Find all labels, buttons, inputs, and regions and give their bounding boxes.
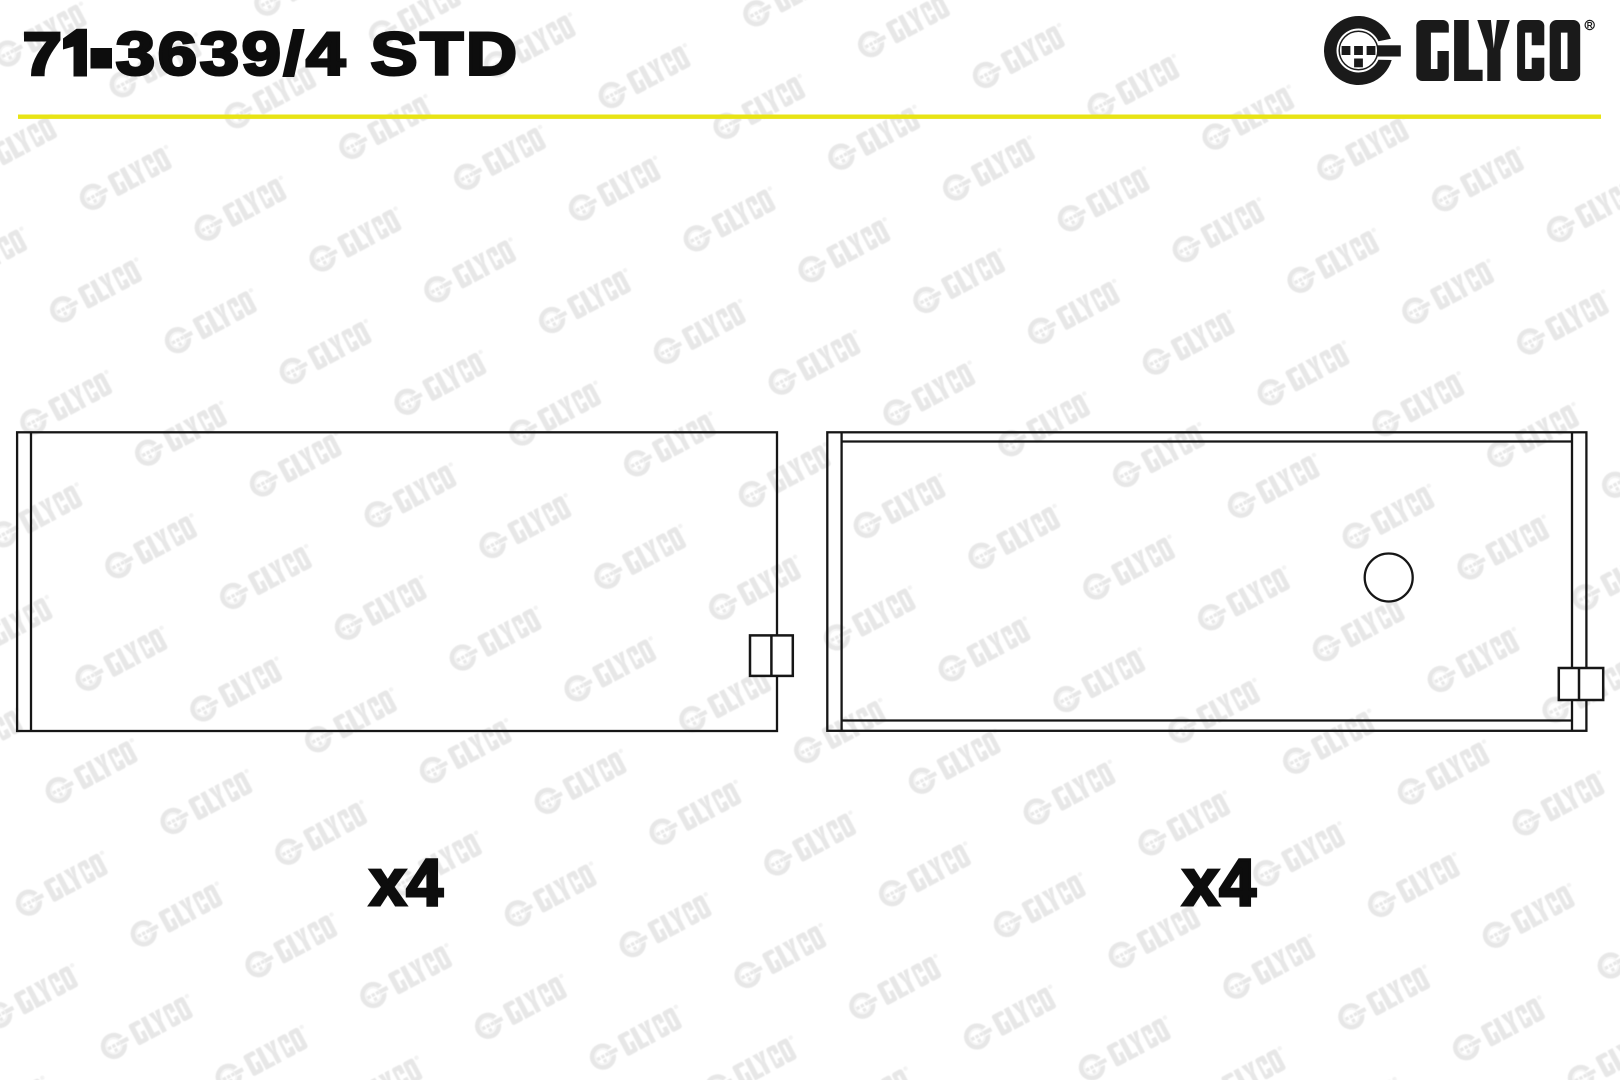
svg-text:x4: x4 xyxy=(370,845,444,919)
svg-text:3639/4 STD: 3639/4 STD xyxy=(116,20,520,87)
svg-text:7: 7 xyxy=(23,20,62,87)
svg-text:x4: x4 xyxy=(1183,845,1257,919)
